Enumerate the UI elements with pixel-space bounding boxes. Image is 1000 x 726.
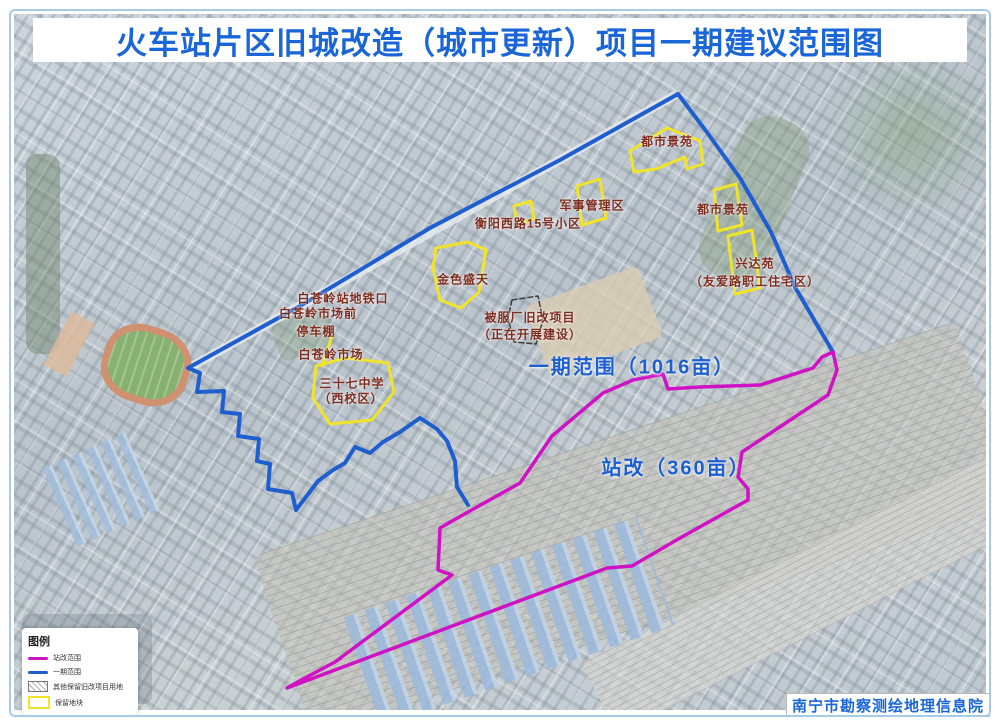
legend-item-label: 其他保留旧改项目用地 [53, 682, 123, 692]
diagonal-road [186, 91, 679, 373]
legend-item-label: 一期范围 [53, 667, 81, 677]
warehouse-cluster [344, 517, 675, 710]
legend-item-phase1-scope: 一期范围 [28, 667, 132, 677]
trees-strip-left [26, 154, 60, 354]
building-block-tan [43, 311, 94, 376]
page-title: 火车站片区旧城改造（城市更新）项目一期建议范围图 [33, 18, 967, 62]
railway-corridor [581, 454, 986, 710]
phase1-line-swatch [28, 671, 48, 674]
legend-title: 图例 [28, 633, 132, 649]
legend-item-label: 保留地块 [55, 698, 83, 708]
hatched-box-swatch [28, 681, 48, 692]
construction-area [525, 266, 663, 378]
trees-patch-top-right [824, 44, 986, 224]
sports-field [92, 314, 200, 415]
station-scope-line-swatch [28, 657, 48, 660]
railway-yard [253, 322, 986, 710]
planning-map-page: 一期范围（1016亩）站改（360亩）都市景苑军事管理区衡阳西路15号小区都市景… [0, 0, 1000, 726]
trees-strip-right [690, 107, 819, 291]
legend-item-reserved-plot: 保留地块 [28, 696, 132, 709]
legend-item-label: 站改范围 [53, 653, 81, 663]
legend-item-station-scope: 站改范围 [28, 653, 132, 663]
legend: 图例 站改范围 一期范围 其他保留旧改项目用地 保留地块 [22, 628, 138, 715]
green-patch-center [269, 305, 339, 363]
yellow-box-swatch [28, 696, 50, 709]
satellite-map [14, 14, 986, 710]
warehouse-cluster-left [43, 430, 164, 546]
legend-item-other-retained: 其他保留旧改项目用地 [28, 681, 132, 692]
credit-box: 南宁市勘察测绘地理信息院 [786, 693, 990, 717]
